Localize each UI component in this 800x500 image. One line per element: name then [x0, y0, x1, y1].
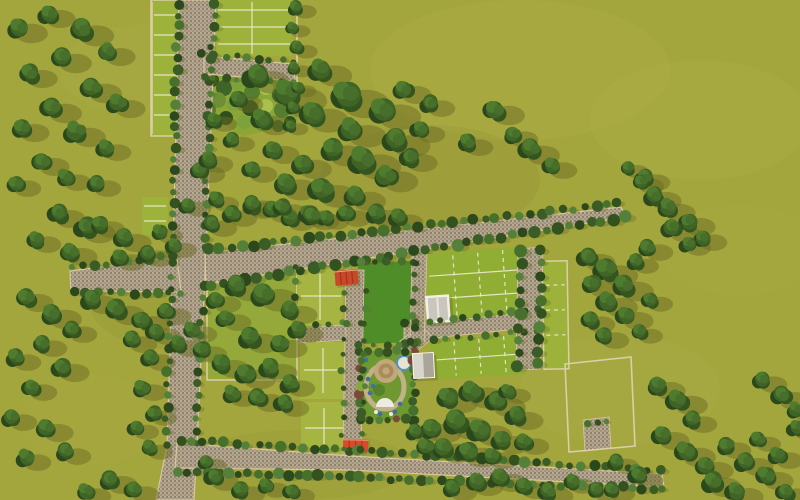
main-entrance-gate — [334, 269, 360, 288]
tree — [152, 224, 168, 240]
play-equipment — [366, 377, 371, 382]
scene-viewport — [0, 0, 800, 500]
play-equipment — [398, 402, 403, 407]
plot-block-north — [216, 0, 292, 56]
play-equipment — [368, 391, 373, 396]
tree — [91, 216, 108, 234]
park-pavilion — [412, 352, 437, 381]
tree — [234, 364, 256, 383]
play-equipment — [378, 412, 383, 417]
play-equipment — [393, 410, 398, 415]
play-equipment — [371, 384, 376, 389]
aerial-masterplan-render — [0, 0, 800, 500]
